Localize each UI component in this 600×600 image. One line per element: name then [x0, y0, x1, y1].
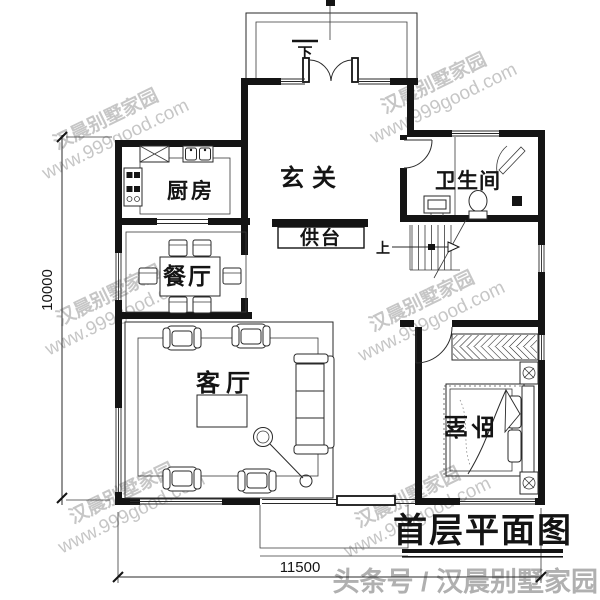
- entry-label: 玄关: [280, 164, 344, 192]
- room-entry: 玄关 供台: [272, 164, 368, 249]
- wall-thin: [262, 500, 337, 504]
- stair-up-label: 上: [376, 240, 390, 256]
- nightstand-symbol: [520, 362, 538, 384]
- kitchen-label: 厨房: [167, 179, 215, 203]
- sink-symbol: [183, 146, 213, 162]
- chair-symbol: [139, 268, 157, 284]
- chair-symbol: [223, 268, 241, 284]
- footer-credit: 头条号 / 汉晨别墅家园: [332, 566, 598, 597]
- chair-symbol: [169, 297, 187, 313]
- plan-title-block: 首层平面图: [393, 512, 573, 558]
- bathroom-label: 卫生间: [435, 169, 501, 193]
- vanity-symbol: [424, 196, 450, 216]
- fridge-symbol: [140, 146, 169, 162]
- armchair-symbol: [232, 324, 270, 348]
- armchair-symbol: [163, 326, 201, 350]
- floor-drain-symbol: [512, 196, 522, 206]
- toilet-symbol: [469, 191, 487, 220]
- plan-title: 首层平面图: [393, 512, 573, 550]
- sofa-symbol: [294, 354, 334, 454]
- dining-label: 餐厅: [163, 263, 213, 289]
- nightstand-symbol: [520, 472, 538, 494]
- window: [452, 131, 499, 136]
- window: [116, 408, 121, 492]
- bedroom-label: 卧室: [441, 412, 495, 440]
- watermark: 汉晨别墅家园 www.999good.com: [28, 73, 193, 184]
- coffee-table-symbol: [197, 395, 247, 427]
- window: [539, 245, 544, 272]
- door-arc: [404, 140, 432, 168]
- floor-plan-canvas: 汉晨别墅家园 www.999good.com 汉晨别墅家园 www.999goo…: [0, 0, 600, 600]
- stove-symbol: [124, 168, 142, 206]
- window: [281, 79, 305, 84]
- chair-symbol: [169, 240, 187, 256]
- floor-plan-page: { "plan": { "title": "首层平面图", "rooms": {…: [0, 0, 600, 600]
- altar-symbol: 供台: [272, 219, 368, 249]
- chair-symbol: [193, 297, 211, 313]
- stair-arrow: [392, 242, 459, 252]
- dim-width-value: 11500: [280, 559, 321, 576]
- chair-symbol: [193, 240, 211, 256]
- window: [358, 79, 390, 84]
- stairs-symbol: 上: [376, 220, 466, 278]
- door-threshold: [157, 220, 208, 224]
- wardrobe-symbol: [452, 334, 538, 360]
- room-bathroom: 卫生间: [424, 137, 522, 219]
- dim-height-value: 10000: [39, 269, 56, 311]
- living-label: 客厅: [196, 369, 256, 397]
- armchair-symbol: [238, 469, 276, 493]
- altar-label: 供台: [299, 226, 342, 249]
- window: [539, 335, 544, 360]
- sliding-door-symbol: [337, 496, 395, 505]
- flag-marker: [326, 0, 335, 6]
- porch-outline: 下: [246, 0, 417, 82]
- room-kitchen: 厨房: [124, 146, 230, 214]
- armchair-symbol: [163, 467, 201, 491]
